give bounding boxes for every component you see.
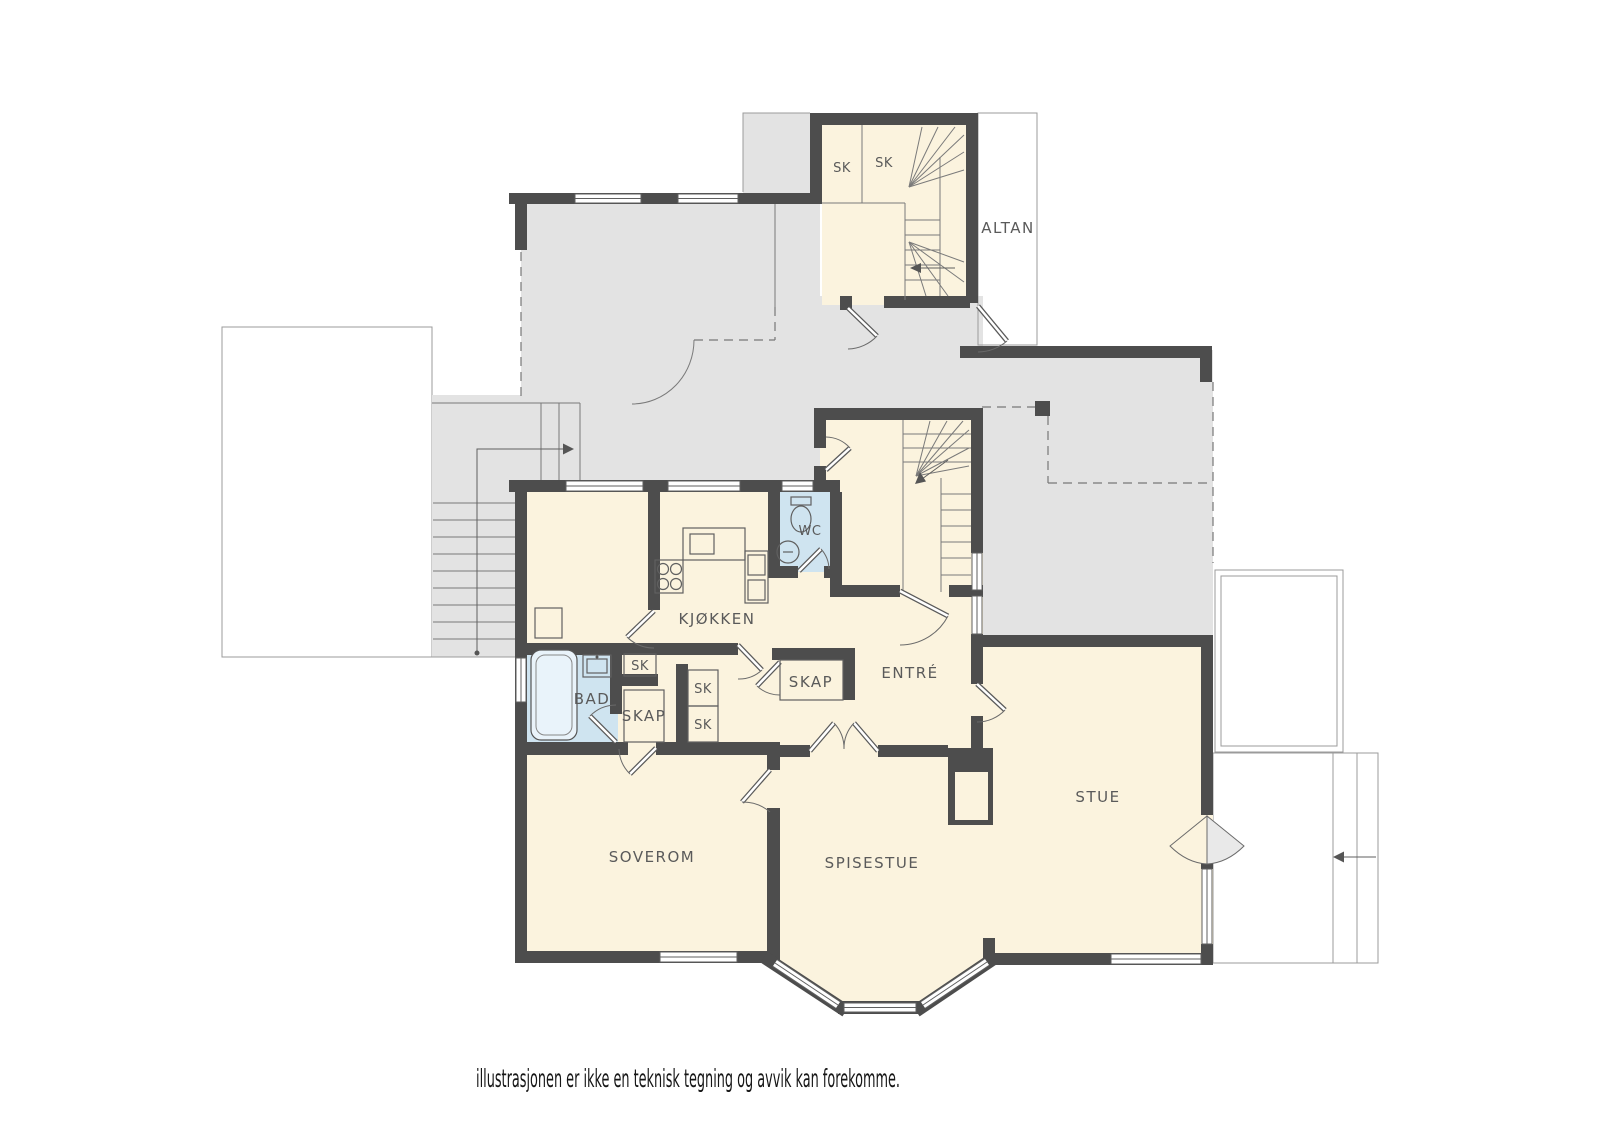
room-label-sk-upper: SK <box>694 682 712 697</box>
window <box>678 194 738 203</box>
room-label-sk-lower: SK <box>694 718 712 733</box>
room-label-altan: ALTAN <box>981 219 1035 237</box>
window <box>1111 954 1201 964</box>
room-label-kjokken: KJØKKEN <box>679 610 756 628</box>
window <box>1202 869 1212 944</box>
right-lower-terrace <box>1213 753 1378 963</box>
room-label-skap-entre: SKAP <box>789 673 833 691</box>
upper-landing-outside <box>743 113 810 345</box>
window <box>516 658 526 702</box>
room-label-skap-hall: SKAP <box>622 707 666 725</box>
veranda-inner-border <box>1221 576 1337 746</box>
room-label-entre: ENTRÉ <box>881 663 938 682</box>
window <box>782 481 813 491</box>
window <box>660 952 737 962</box>
room-upper-landing <box>822 120 966 305</box>
window <box>972 596 982 634</box>
room-label-stue: STUE <box>1075 788 1120 806</box>
window <box>566 481 643 491</box>
left-terrace <box>222 327 432 657</box>
room-label-wc: WC <box>799 524 822 539</box>
bathtub <box>531 650 577 740</box>
bay-window <box>844 1003 916 1012</box>
veranda-area <box>1215 570 1343 752</box>
floorplan-drawing: SK SK ALTAN WC KJØKKEN ENTRÉ BAD SK SKAP… <box>0 0 1600 1131</box>
right-upper-terrace <box>968 350 1213 635</box>
room-label-sk1: SK <box>833 161 851 176</box>
room-label-bad: BAD <box>574 690 611 708</box>
floorplan-page: SK SK ALTAN WC KJØKKEN ENTRÉ BAD SK SKAP… <box>0 0 1600 1131</box>
window <box>668 481 740 491</box>
room-label-sk2: SK <box>875 156 893 171</box>
window <box>575 194 641 203</box>
terrace-stair <box>1333 753 1376 963</box>
covered-strip <box>815 296 983 420</box>
window <box>972 553 982 590</box>
room-label-spisestue: SPISESTUE <box>825 854 920 872</box>
disclaimer-text: illustrasjonen er ikke en teknisk tegnin… <box>476 1064 900 1093</box>
terrace-stair-arrow-icon <box>1333 852 1344 863</box>
room-label-soverom: SOVEROM <box>609 848 695 866</box>
room-label-sk-small: SK <box>631 659 649 674</box>
